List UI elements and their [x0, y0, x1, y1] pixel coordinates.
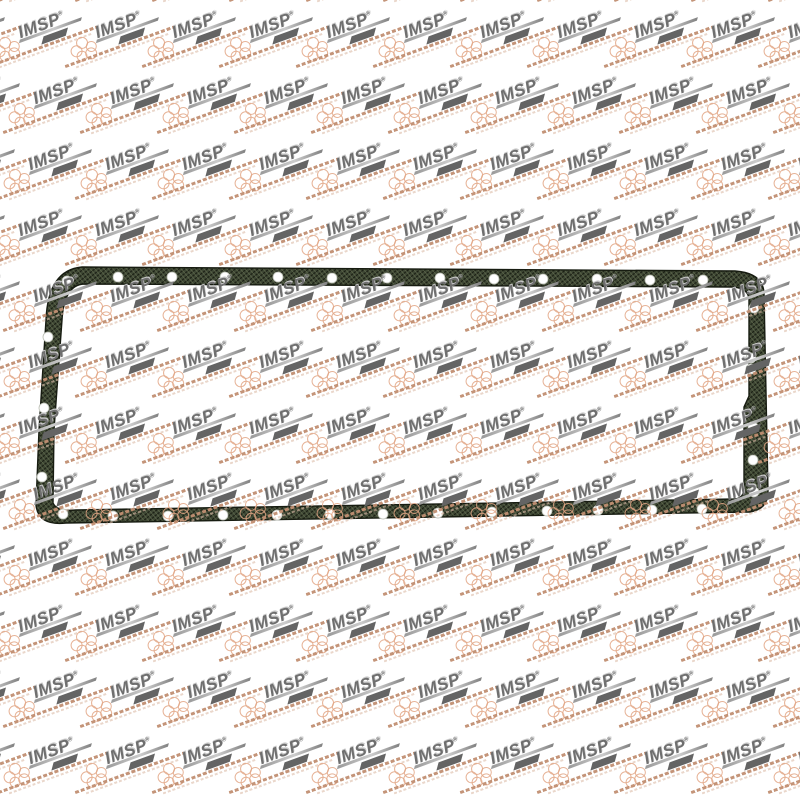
bolt-hole	[749, 487, 759, 497]
bolt-hole	[167, 272, 177, 282]
gasket-body	[36, 267, 768, 523]
bolt-hole	[62, 276, 72, 286]
bolt-hole	[43, 332, 53, 342]
bolt-hole	[748, 422, 758, 432]
bolt-hole	[698, 275, 708, 285]
bolt-hole	[538, 274, 548, 284]
bolt-hole	[433, 508, 443, 518]
bolt-hole	[273, 272, 283, 282]
bolt-hole	[647, 505, 657, 515]
bolt-hole	[697, 504, 707, 514]
bolt-hole	[108, 511, 118, 521]
bolt-hole	[746, 364, 756, 374]
oil-pan-gasket-image	[0, 0, 800, 800]
bolt-hole	[37, 472, 47, 482]
bolt-hole	[220, 272, 230, 282]
bolt-hole	[39, 403, 49, 413]
bolt-hole	[435, 273, 445, 283]
bolt-hole	[748, 455, 758, 465]
bolt-hole	[327, 273, 337, 283]
bolt-hole	[487, 507, 497, 517]
bolt-hole	[113, 272, 123, 282]
bolt-hole	[593, 505, 603, 515]
bolt-hole	[749, 303, 759, 313]
product-photo: IMSP®IMSP®IMSP®IMSP®IMSP®IMSP®IMSP®IMSP®…	[0, 0, 800, 800]
bolt-hole	[272, 510, 282, 520]
bolt-hole	[325, 509, 335, 519]
bolt-hole	[542, 506, 552, 516]
bolt-hole	[592, 274, 602, 284]
bolt-hole	[218, 510, 228, 520]
bolt-hole	[378, 509, 388, 519]
bolt-hole	[746, 353, 756, 363]
bolt-hole	[58, 509, 68, 519]
bolt-hole	[645, 275, 655, 285]
bolt-hole	[382, 273, 392, 283]
bolt-hole	[489, 274, 499, 284]
bolt-hole	[163, 511, 173, 521]
